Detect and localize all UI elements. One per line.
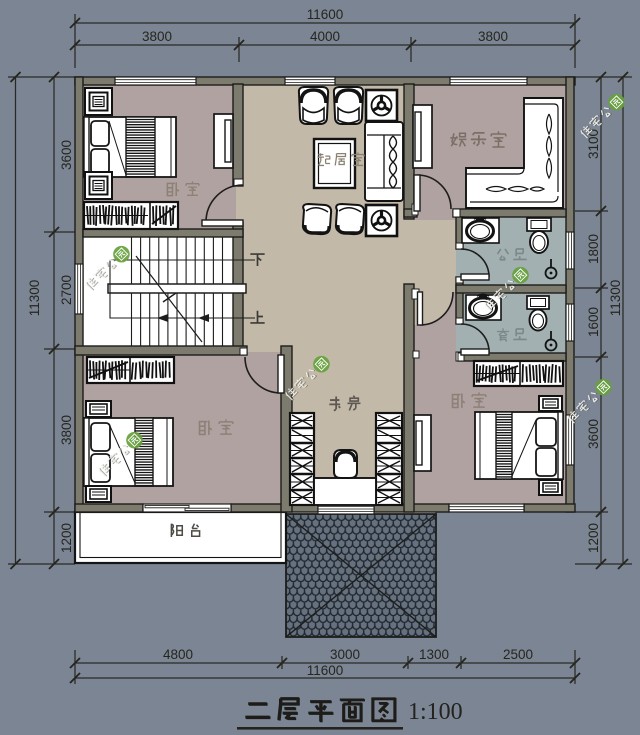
svg-text:1300: 1300 [419,647,449,662]
svg-text:2500: 2500 [503,647,533,662]
svg-text:4000: 4000 [310,29,340,44]
svg-text:4800: 4800 [163,647,193,662]
svg-text:3600: 3600 [59,140,74,170]
svg-text:11300: 11300 [27,280,42,317]
svg-text:11600: 11600 [307,663,344,678]
svg-text:3800: 3800 [59,415,74,445]
svg-text:1200: 1200 [586,523,601,553]
svg-text:3000: 3000 [330,647,360,662]
svg-text:1:100: 1:100 [408,699,463,725]
svg-text:3800: 3800 [142,29,172,44]
svg-text:11600: 11600 [307,7,344,22]
svg-text:11300: 11300 [608,280,623,317]
svg-text:1800: 1800 [586,234,601,264]
svg-text:3800: 3800 [478,29,508,44]
svg-text:1200: 1200 [59,523,74,553]
svg-text:2700: 2700 [59,275,74,305]
svg-text:1600: 1600 [586,307,601,337]
svg-text:3600: 3600 [586,419,601,449]
